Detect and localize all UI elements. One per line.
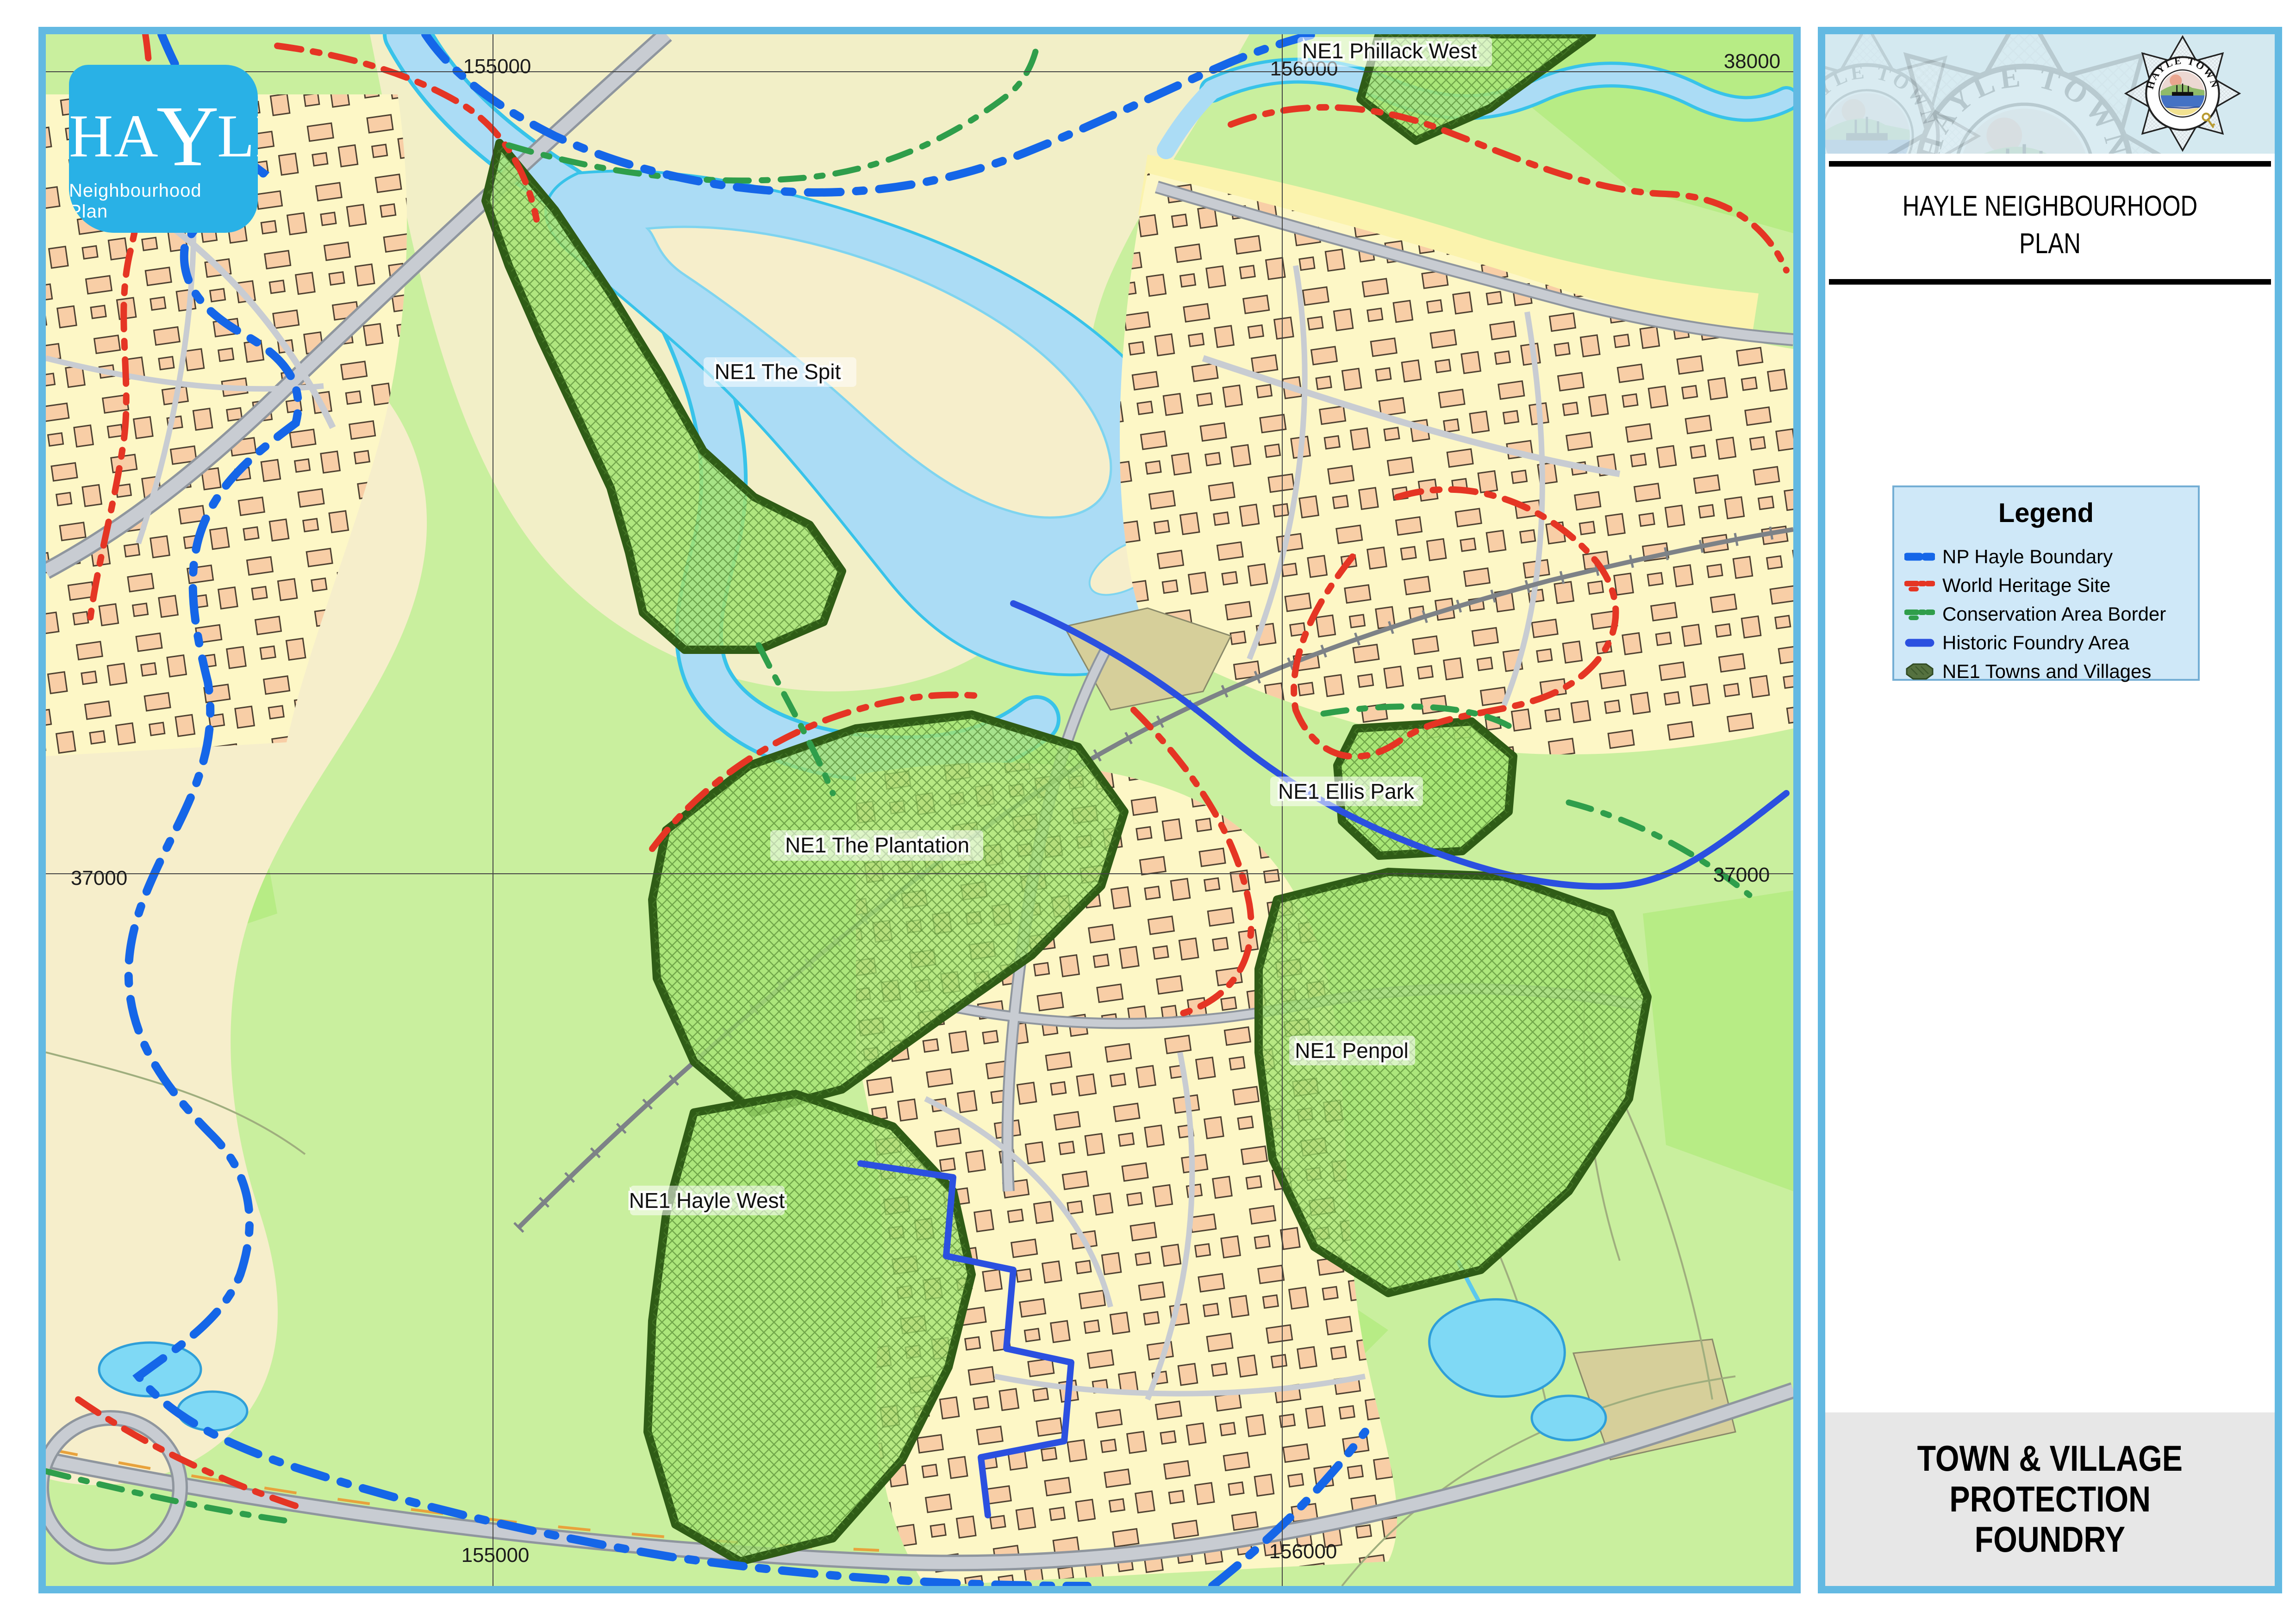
grid-label-155000-top: 155000 [463, 55, 531, 78]
map-sheet-title: TOWN & VILLAGE PROTECTION FOUNDRY [1825, 1412, 2275, 1586]
panel-divider-bottom [1829, 279, 2271, 285]
legend-label: NP Hayle Boundary [1942, 546, 2113, 568]
world-heritage-site-symbol-icon [1904, 577, 1935, 594]
area-label-the-spit: NE1 The Spit [715, 360, 841, 384]
grid-label-37000-left: 37000 [71, 867, 127, 889]
area-label-penpol: NE1 Penpol [1295, 1038, 1409, 1063]
ne1-towns-and-villages-symbol-icon [1904, 663, 1935, 680]
grid-label-37000-right: 37000 [1713, 864, 1770, 886]
legend-item-conservation-area-border: Conservation Area Border [1894, 600, 2198, 628]
conservation-area-border-symbol-icon [1904, 605, 1935, 623]
area-label-ellis-park: NE1 Ellis Park [1278, 779, 1415, 803]
area-label-hayle-west: NE1 Hayle West [629, 1188, 785, 1213]
grid-label-155000-bottom: 155000 [462, 1544, 530, 1567]
panel-title: HAYLE NEIGHBOURHOOD PLAN [1865, 188, 2234, 262]
logo-wordmark: HAYLE [69, 106, 258, 167]
historic-foundry-area-symbol-icon [1904, 634, 1935, 652]
map-sheet: 155000 156000 38000 37000 37000 155000 1… [38, 27, 1801, 1593]
legend-item-world-heritage-site: World Heritage Site [1894, 571, 2198, 600]
legend-box: Legend NP Hayle Boundary World Heritage … [1892, 485, 2200, 681]
legend-label: Conservation Area Border [1942, 603, 2166, 625]
hayle-neighbourhood-plan-logo: HAYLE Neighbourhood Plan [69, 65, 258, 233]
np-hayle-boundary-symbol-icon [1904, 548, 1935, 566]
legend-title: Legend [1894, 497, 2198, 529]
legend-label: World Heritage Site [1942, 574, 2110, 597]
grid-label-156000-bottom: 156000 [1269, 1540, 1337, 1563]
panel-header-crest: HAYLE TOWN COUNCIL [1825, 34, 2275, 154]
legend-label: NE1 Towns and Villages [1942, 660, 2151, 683]
legend-item-historic-foundry-area: Historic Foundry Area [1894, 628, 2198, 657]
side-panel: HAYLE TOWN COUNCIL HAYLE NEIGHBOURHOOD P… [1818, 27, 2282, 1593]
logo-subtitle: Neighbourhood Plan [69, 180, 241, 222]
area-label-the-plantation: NE1 The Plantation [785, 833, 969, 857]
legend-item-np-hayle-boundary: NP Hayle Boundary [1894, 542, 2198, 571]
panel-divider-top [1829, 161, 2271, 167]
map-canvas: 155000 156000 38000 37000 37000 155000 1… [46, 34, 1793, 1586]
area-label-phillack-west: NE1 Phillack West [1302, 39, 1477, 63]
legend-label: Historic Foundry Area [1942, 632, 2129, 654]
legend-item-ne1-towns-and-villages: NE1 Towns and Villages [1894, 657, 2198, 686]
grid-label-38000-top: 38000 [1724, 50, 1780, 73]
town-council-crest-icon: HAYLE TOWN COUNCIL [1825, 34, 2260, 154]
